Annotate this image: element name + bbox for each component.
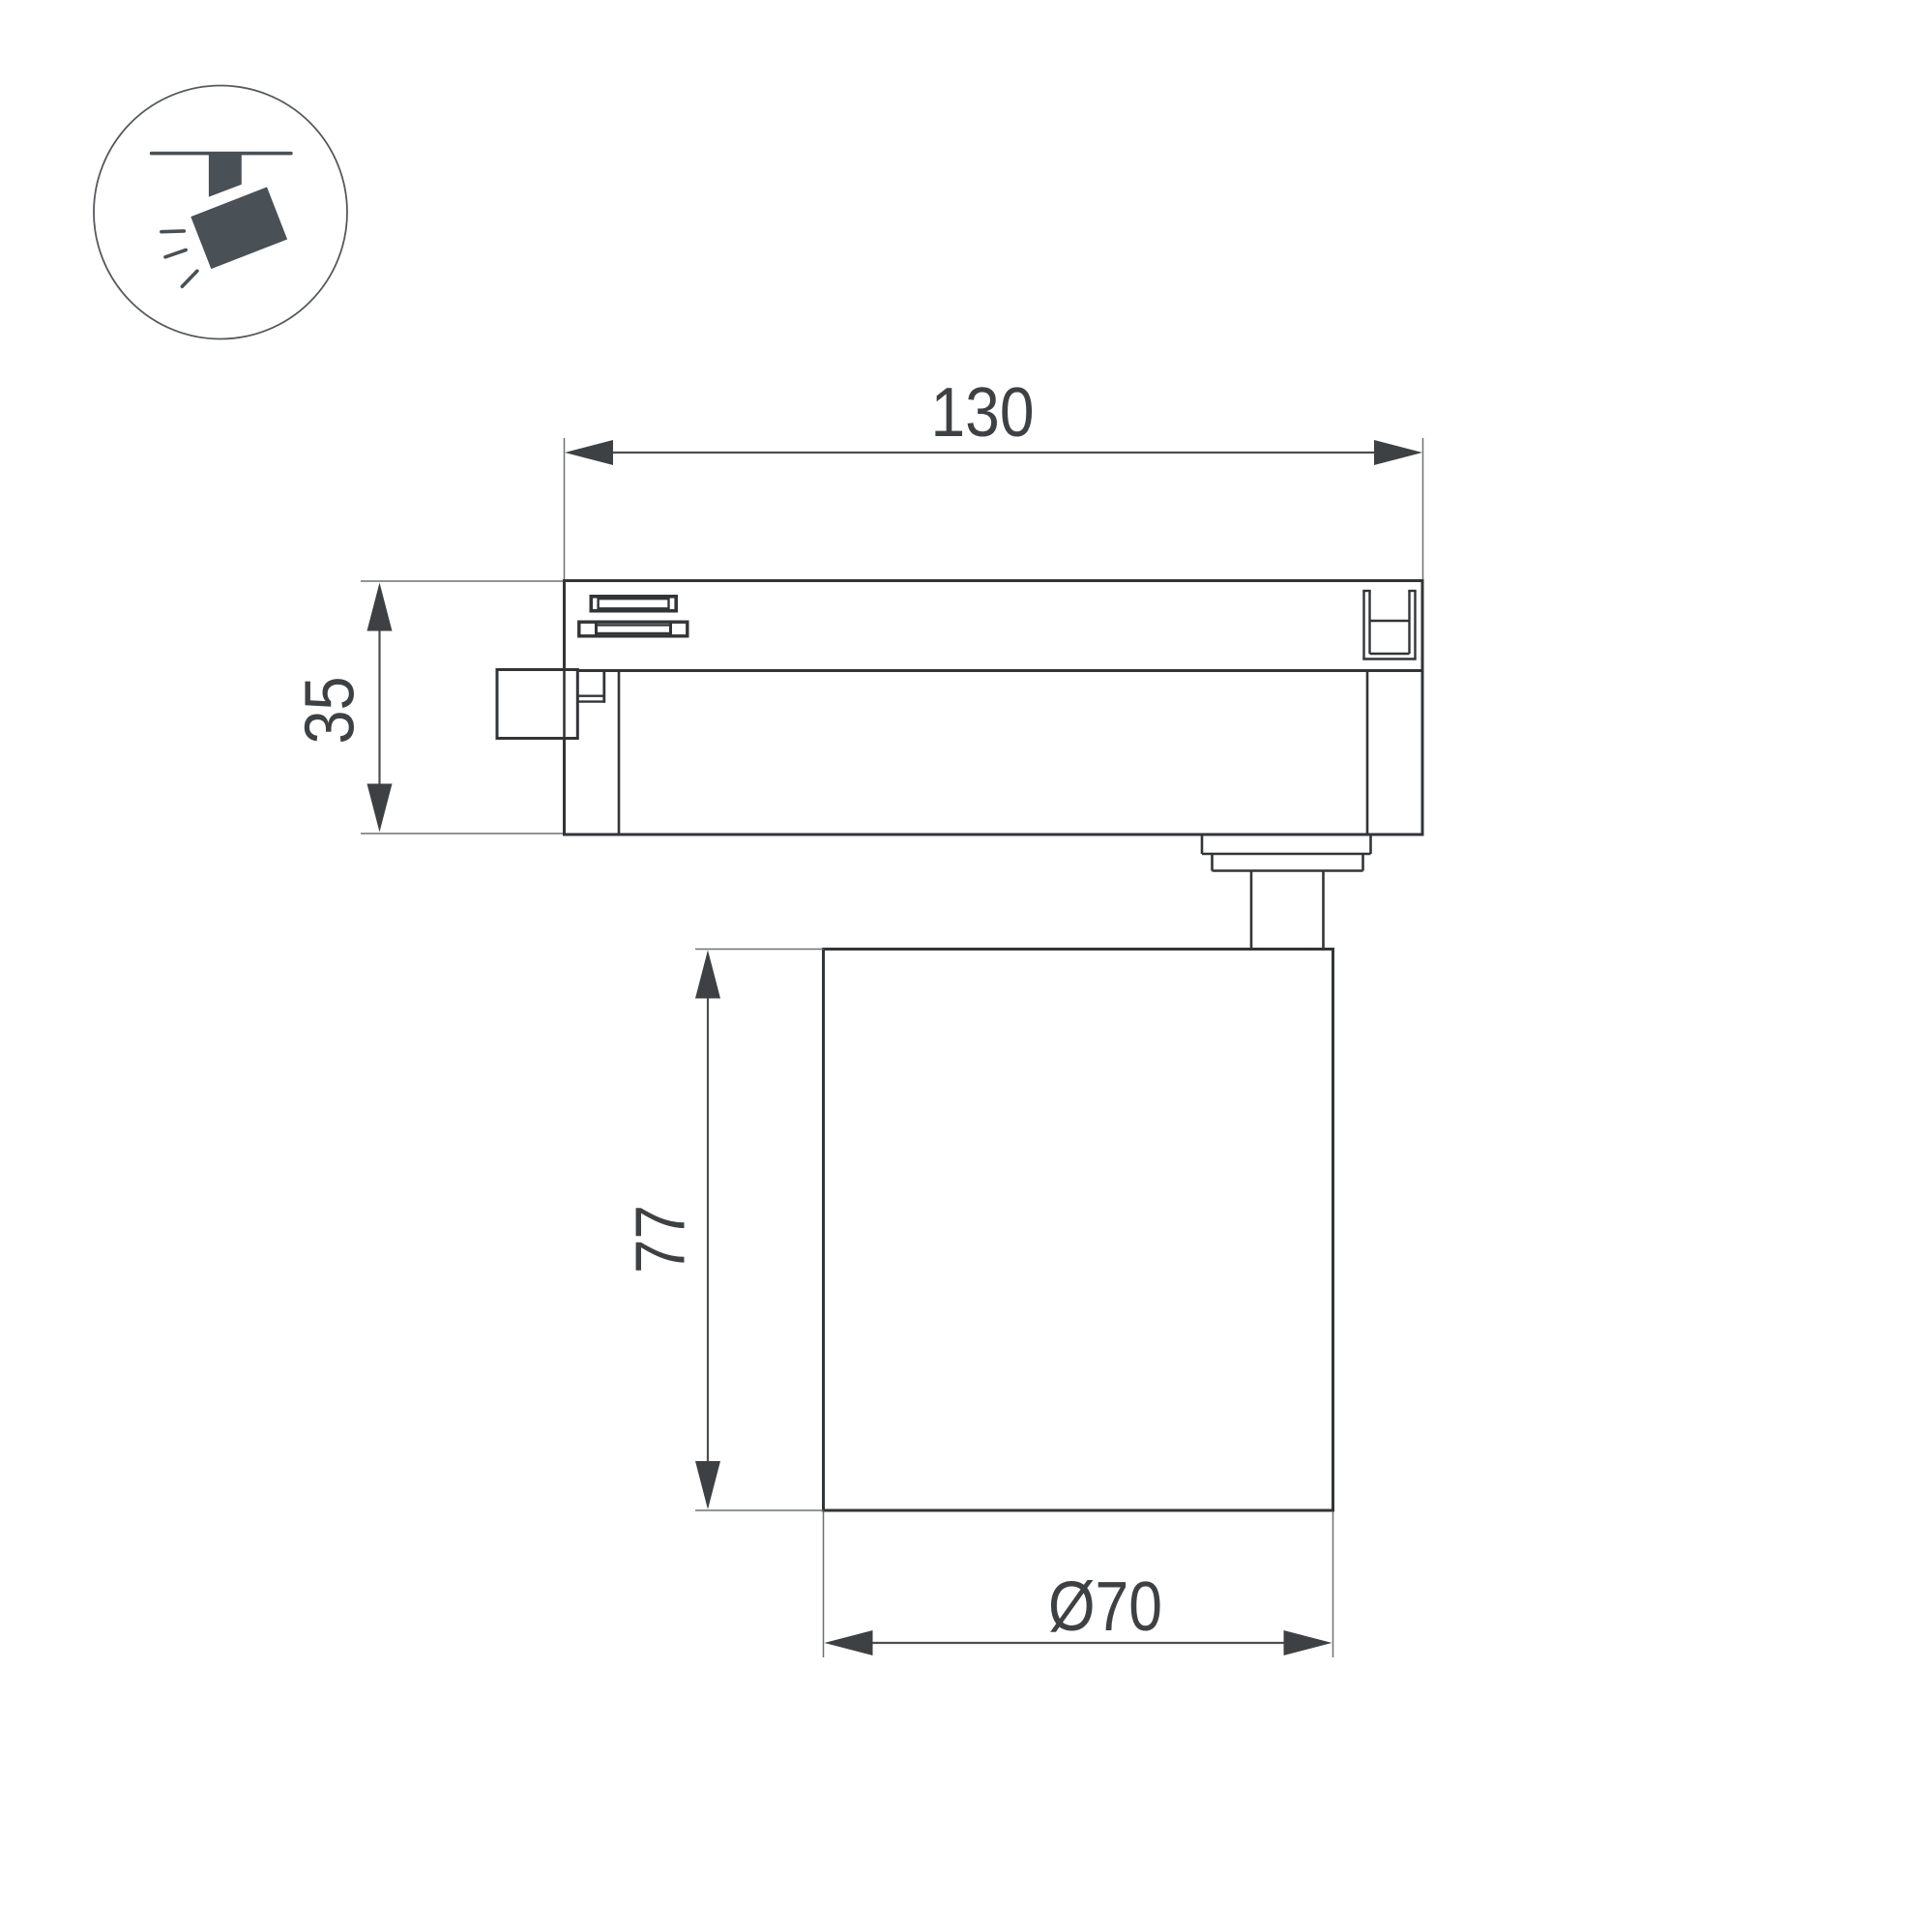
svg-text:Ø70: Ø70 — [1048, 1568, 1162, 1646]
svg-text:130: 130 — [931, 374, 1035, 452]
svg-text:35: 35 — [292, 677, 369, 745]
svg-text:77: 77 — [623, 1205, 700, 1273]
